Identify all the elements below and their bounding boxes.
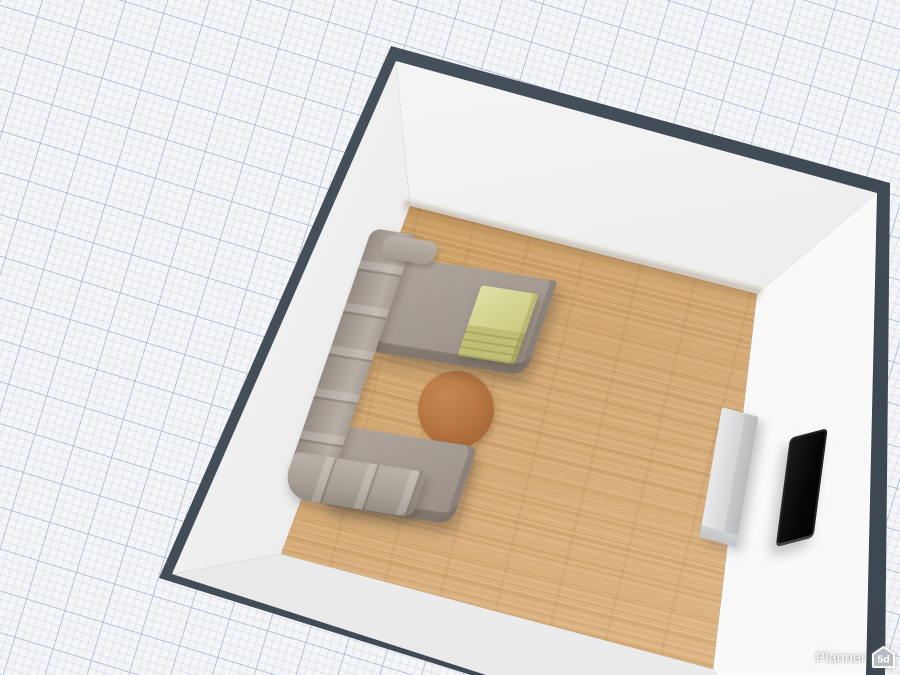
- watermark: Planner 5d: [816, 645, 896, 669]
- planner-3d-canvas[interactable]: Planner 5d: [0, 0, 900, 675]
- watermark-brand-text: Planner: [816, 649, 866, 665]
- badge-text: 5d: [877, 653, 889, 665]
- house-icon: 5d: [871, 645, 896, 669]
